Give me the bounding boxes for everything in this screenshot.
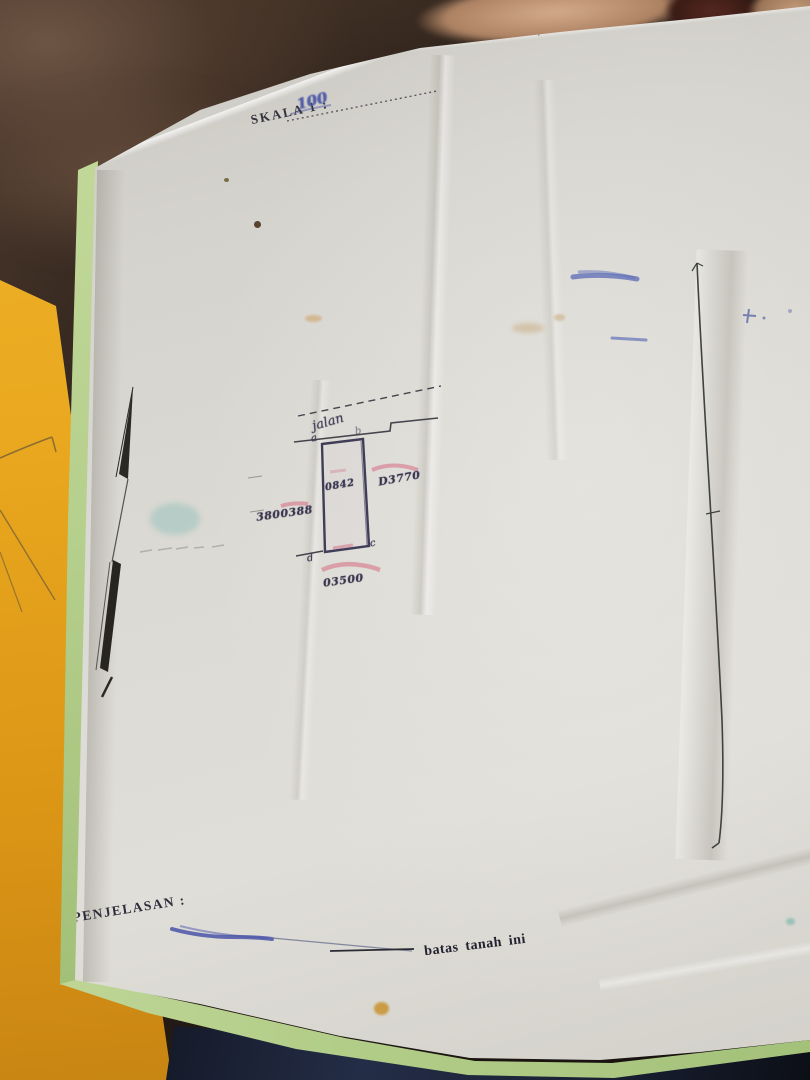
legend-lines: [172, 926, 414, 951]
fold-crease-line: [692, 263, 723, 848]
road-lines: [294, 386, 441, 442]
plot-rectangle: [248, 439, 369, 556]
pencil-dashes: [140, 545, 224, 552]
survey-paper: SKALA 1 : 100 jalan a b c d 0842 D3770 3…: [0, 0, 810, 1080]
ink-strokes: [0, 0, 810, 1080]
blue-pen-marks: [573, 272, 792, 340]
scale-dotted-line: [287, 91, 437, 121]
north-arrow-icon: [96, 387, 133, 697]
